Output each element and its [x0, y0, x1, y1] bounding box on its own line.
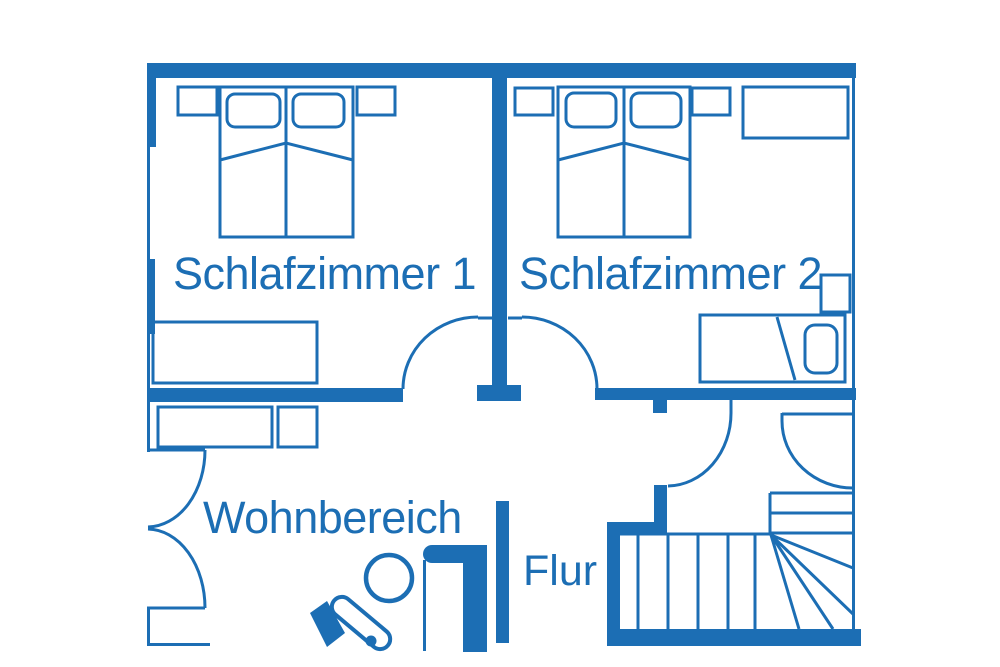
double-bed-icon	[220, 87, 353, 237]
single-bed-icon	[700, 315, 845, 382]
winder-stairs-icon	[771, 535, 853, 629]
door-arc-icon	[148, 529, 205, 608]
door-arc-icon	[403, 317, 478, 389]
open-door-icon	[423, 545, 487, 652]
door-schlafzimmer-2	[508, 317, 597, 389]
wall-stairs-bottom	[607, 629, 861, 646]
door-frame-side	[463, 545, 487, 652]
person-head	[366, 555, 412, 601]
double-door-wohnbereich	[147, 450, 205, 608]
side-table-icon	[821, 275, 850, 312]
room-label-wohnbereich: Wohnbereich	[203, 492, 462, 543]
wall-flur-stub-upper	[653, 399, 667, 413]
pillow-icon	[293, 94, 344, 127]
room-label-flur: Flur	[523, 547, 597, 595]
wall-top	[147, 63, 856, 78]
floor-plan-canvas: Schlafzimmer 1 Schlafzimmer 2 Wohnbereic…	[0, 0, 1000, 667]
pillow-icon	[227, 94, 280, 127]
winder-tread	[771, 535, 833, 629]
nightstand-icon	[515, 88, 553, 115]
double-bed-icon	[558, 87, 690, 237]
floor-plan: Schlafzimmer 1 Schlafzimmer 2 Wohnbereic…	[0, 0, 1000, 667]
door-arc-icon	[522, 317, 597, 389]
door-arc-icon	[148, 450, 205, 527]
door-flur-right	[782, 413, 853, 488]
room-label-schlafzimmer-1: Schlafzimmer 1	[173, 248, 476, 299]
room-label-schlafzimmer-2: Schlafzimmer 2	[519, 248, 822, 299]
sideboard-icon	[158, 407, 272, 447]
nightstand-icon	[178, 87, 217, 115]
cabinet-icon	[278, 407, 317, 447]
wall-divider-flur	[496, 501, 509, 643]
door-arc-icon	[668, 413, 731, 486]
wall-interior-right	[595, 388, 856, 400]
pillow-icon	[631, 93, 681, 127]
sideboard-icon	[153, 322, 317, 383]
room-flur: Flur	[523, 493, 853, 629]
wardrobe-icon	[743, 87, 848, 138]
person-hand	[366, 636, 377, 647]
wall-stairs-vertical	[607, 522, 620, 634]
door-flur-left	[668, 399, 731, 486]
wall-interior-left	[147, 388, 403, 402]
person-reading-icon	[310, 555, 412, 653]
room-wohnbereich: Wohnbereich	[158, 407, 487, 653]
room-schlafzimmer-1: Schlafzimmer 1	[153, 87, 476, 383]
room-schlafzimmer-2: Schlafzimmer 2	[515, 87, 850, 382]
nightstand-icon	[692, 88, 730, 115]
door-schlafzimmer-1	[403, 317, 492, 389]
blanket-line	[777, 317, 795, 380]
door-arc-icon	[782, 421, 853, 488]
pillow-icon	[805, 325, 837, 373]
wall-central-stub	[477, 385, 521, 401]
pillow-icon	[566, 93, 616, 127]
nightstand-icon	[357, 87, 395, 115]
wall-central	[492, 78, 507, 386]
wall-left-upper	[147, 63, 156, 147]
